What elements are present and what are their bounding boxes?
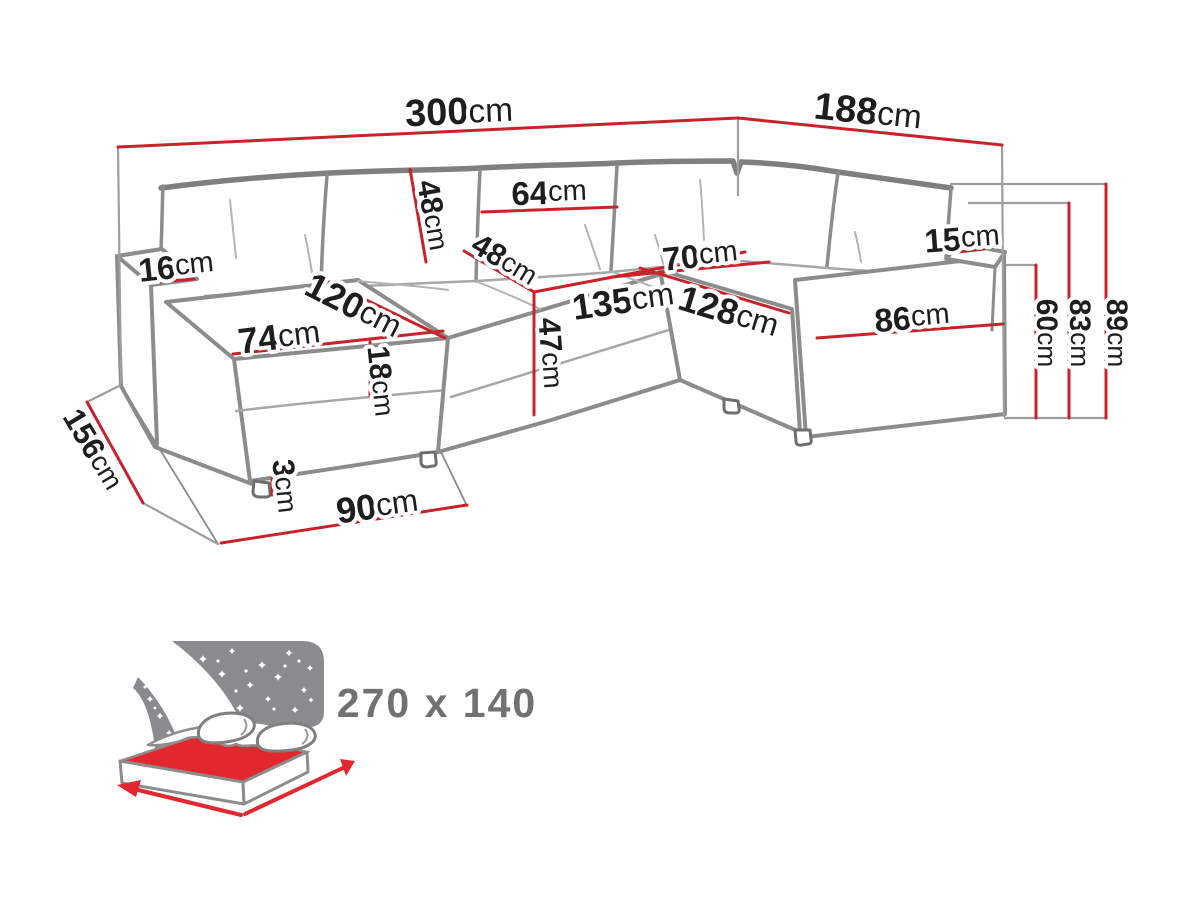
star-dot-icon [244, 669, 247, 672]
dim-label-total-height: 89cm [1101, 299, 1134, 368]
right-armrest-foot [795, 430, 811, 445]
dim-label-leg-height: 3cm [266, 458, 306, 515]
star-icon [181, 699, 188, 706]
star-icon [192, 679, 198, 685]
star-dot-icon [234, 689, 237, 692]
dim-label-total-width: 300cm [404, 89, 514, 136]
star-icon [209, 694, 215, 700]
right-section-foot [724, 399, 739, 413]
star-dot-icon [283, 664, 286, 667]
dim-label-left-armrest-width: 16cm [137, 244, 216, 289]
star-dot-icon [216, 659, 219, 662]
connector-156-top [87, 385, 121, 402]
left-armrest-edges [117, 256, 252, 484]
chaise-foot-left [253, 481, 270, 497]
star-dot-icon [154, 707, 157, 710]
dim-label-right-seat-width: 70cm [661, 233, 740, 278]
chaise-cushion-seam [236, 390, 447, 411]
dim-label-total-depth-left: 156cm [56, 402, 131, 496]
dim-label-chaise-width: 74cm [236, 311, 323, 362]
dim-label-height-to-armrest: 60cm [1031, 299, 1064, 368]
star-dot-icon [272, 707, 275, 710]
dim-label-height-to-backrest: 83cm [1064, 299, 1097, 368]
sofa-dimension-diagram: 300cm 188cm 16cm 48cm 64cm 48cm 70cm 15c… [0, 0, 1200, 900]
diagram-svg: 300cm 188cm 16cm 48cm 64cm 48cm 70cm 15c… [0, 0, 1200, 900]
sleeping-area-size-label: 270 x 140 [337, 680, 537, 726]
dim-label-back-cushion-width: 64cm [511, 172, 588, 212]
chaise-front-edges [234, 338, 448, 481]
star-dot-icon [188, 690, 191, 693]
right-armrest-panel [795, 256, 1005, 437]
dim-label-total-depth-right: 188cm [812, 85, 924, 138]
dim-label-backrest-cushion-height: 48cm [411, 177, 458, 253]
star-dot-icon [297, 659, 300, 662]
dim-label-seat-cushion-thickness: 18cm [361, 344, 403, 418]
sofa-bed-icon: 270 x 140 [117, 641, 537, 815]
dim-label-chaise-floor-depth: 90cm [333, 479, 420, 531]
chaise-foot-right [421, 452, 436, 467]
connector-156-bottom [143, 503, 218, 544]
